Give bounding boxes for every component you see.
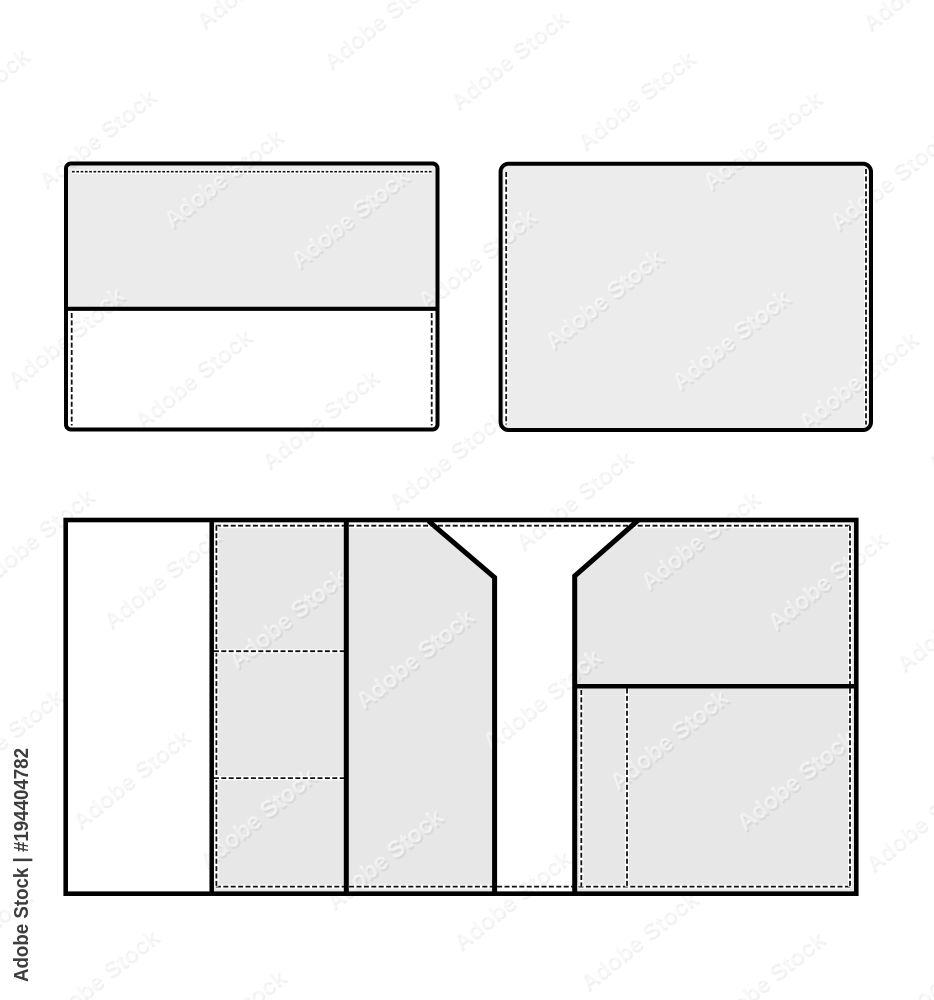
svg-text:Adobe Stock | #194404782: Adobe Stock | #194404782: [10, 748, 33, 982]
